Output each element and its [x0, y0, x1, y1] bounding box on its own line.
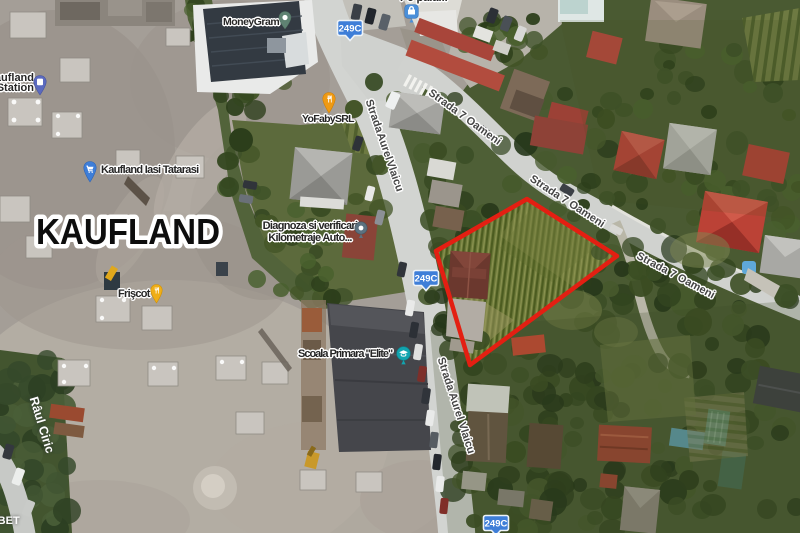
svg-text:249C: 249C	[339, 24, 362, 35]
svg-text:KAUFLAND: KAUFLAND	[36, 211, 220, 252]
svg-text:249C: 249C	[415, 274, 438, 285]
svg-text:249C: 249C	[485, 519, 508, 530]
